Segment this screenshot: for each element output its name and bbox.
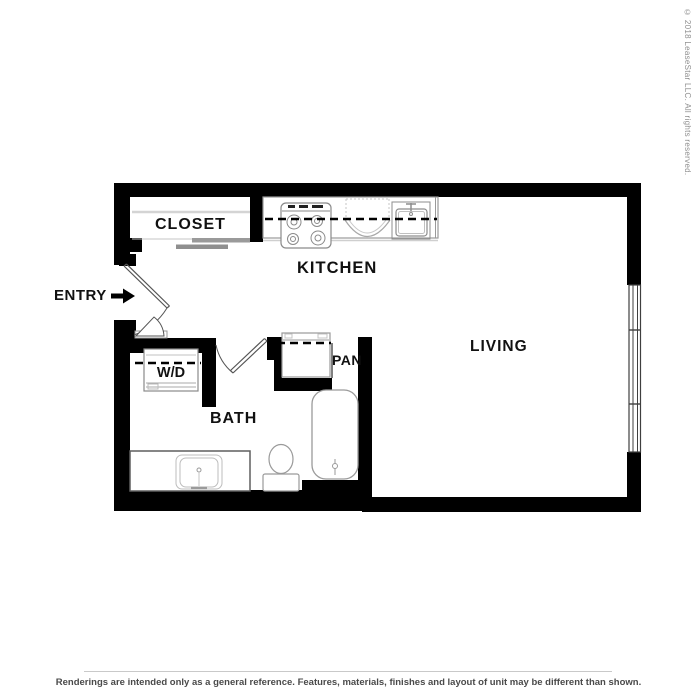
window-frame [629, 285, 641, 452]
washer-dryer-label: W/D [144, 366, 198, 381]
bathtub-faucet [333, 464, 338, 469]
stove-control-1 [288, 205, 295, 208]
entry-label: ENTRY [54, 288, 107, 303]
bath-door [216, 339, 267, 374]
entry-arrow-icon [111, 289, 135, 304]
kitchen-label: KITCHEN [297, 260, 377, 277]
hall-door-fan [136, 317, 164, 336]
wall-pantry-bottom [275, 378, 332, 391]
entry-door-leaf [124, 264, 170, 308]
wall-left-lower [114, 320, 130, 511]
stove-control-2 [299, 205, 308, 208]
toilet-tank [263, 474, 299, 491]
pantry-label: PAN [332, 353, 362, 367]
bath-door-leaf [231, 339, 268, 374]
toilet-bowl [269, 445, 293, 474]
wall-left-upper [114, 183, 130, 265]
stove [281, 203, 331, 248]
living-label: LIVING [470, 339, 528, 355]
wall-bottom-living [362, 497, 641, 512]
closet-left-jamb [130, 238, 142, 252]
floorplan-page: CLOSET KITCHEN LIVING ENTRY W/D BATH PAN… [0, 0, 697, 697]
disclaimer-text: Renderings are intended only as a genera… [0, 677, 697, 688]
kitchen-fixtures [252, 197, 438, 248]
wall-bottom-tub-step [302, 480, 372, 511]
wall-wd-right [202, 340, 216, 407]
wall-right-upper [627, 183, 641, 285]
floorplan-drawing [0, 0, 697, 697]
wall-top [114, 183, 641, 197]
vanity-counter [130, 451, 250, 491]
closet-sliding-door-2 [176, 245, 228, 250]
closet-label: CLOSET [155, 217, 226, 233]
closet-sliding-door-1 [192, 238, 250, 243]
bath-label: BATH [210, 411, 257, 427]
bath-door-arc [216, 345, 233, 373]
footer-divider [84, 671, 612, 672]
window [629, 285, 641, 452]
stove-control-3 [312, 205, 323, 208]
entry-jamb-bottom [119, 320, 136, 339]
bath-fixtures [130, 390, 358, 491]
pantry-fixtures [277, 333, 332, 378]
copyright-watermark: © 2018 LeaseStar LLC. All rights reserve… [683, 8, 692, 208]
